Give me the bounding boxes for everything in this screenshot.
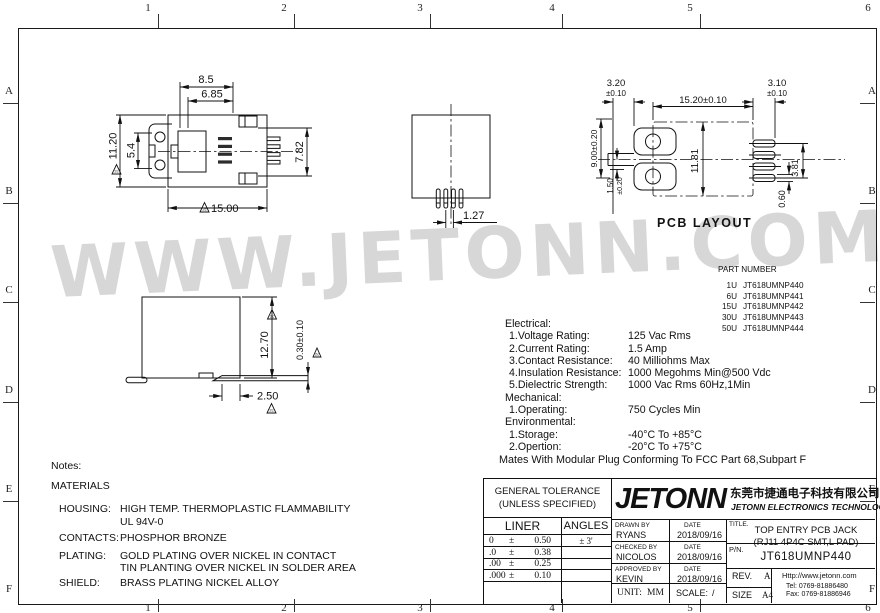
divider	[726, 587, 771, 588]
part-qty: 15U	[698, 302, 737, 313]
dim-label: 1.50	[606, 178, 615, 194]
part-qty: 1U	[698, 281, 737, 292]
material-value: GOLD PLATING OVER NICKEL IN CONTACT	[120, 550, 336, 562]
pcb-layout-caption: PCB LAYOUT	[657, 216, 752, 230]
grid-row-label: C	[864, 284, 880, 296]
grid-tick	[860, 302, 875, 303]
top-view-drawing: 8.5 6.85 11.20 2c 5.4 7.82 2c 15.00	[95, 60, 335, 230]
dim-label: 6.85	[201, 89, 222, 101]
dim-label: 1.27	[463, 210, 484, 222]
materials-title: MATERIALS	[51, 480, 110, 492]
tel: Tel: 0769-81886480	[786, 583, 848, 590]
grid-tick	[3, 302, 18, 303]
spec-row: 2.Current Rating:1.5 Amp	[505, 343, 771, 355]
drawing-title-line2: (RJ11 4P4C SMT,L PAD)	[736, 537, 876, 548]
checked-date: 2018/09/16	[677, 552, 722, 562]
material-value: HIGH TEMP. THERMOPLASTIC FLAMMABILITY	[120, 503, 350, 515]
part-pn: JT618UMNP441	[743, 292, 804, 301]
pcb-geometry	[598, 122, 845, 196]
spec-row: 2.Opertion:-20°C To +75°C	[505, 441, 771, 453]
spec-row: 3.Contact Resistance:40 Milliohms Max	[505, 355, 771, 367]
spec-label: 1.Operating:	[509, 404, 628, 416]
dim-label: ±0.20	[617, 177, 624, 195]
grid-tick	[3, 501, 18, 502]
grid-col-label: 5	[682, 2, 698, 14]
date-label: DATE	[684, 566, 701, 573]
grid-tick	[860, 402, 875, 403]
grid-tick	[294, 14, 295, 28]
checked-by-label: CHECKED BY	[615, 544, 657, 551]
grid-col-label: 3	[412, 602, 428, 613]
material-value: TIN PLANTING OVER NICKEL IN SOLDER AREA	[120, 562, 356, 574]
dim-label: 0.60	[777, 190, 787, 208]
environmental-title: Environmental:	[505, 416, 771, 428]
tol-value: 0.25	[525, 559, 551, 569]
front-view-geometry	[412, 104, 490, 227]
spec-value: 1.5 Amp	[628, 343, 667, 355]
spec-value: -20°C To +75°C	[628, 441, 702, 453]
approved-by-label: APPROVED BY	[615, 566, 662, 573]
divider	[726, 568, 875, 569]
tol-value: 0.10	[525, 571, 551, 581]
size-label: SIZE	[732, 590, 752, 600]
dim-label: 11.20	[108, 133, 120, 160]
tol-value: 0.38	[525, 548, 551, 558]
date-label: DATE	[684, 522, 701, 529]
mechanical-title: Mechanical:	[505, 392, 771, 404]
date-label: DATE	[684, 544, 701, 551]
tol-row: .0±0.38	[489, 548, 551, 558]
part-row: 6UJT618UMNP441	[698, 292, 804, 303]
liner-header: LINER	[484, 519, 561, 533]
grid-tick	[158, 14, 159, 28]
part-row: 1UJT618UMNP440	[698, 281, 804, 292]
divider	[611, 541, 726, 542]
spec-row: 4.Insulation Resistance:1000 Megohms Min…	[505, 367, 771, 379]
website: Http://www.jetonn.com	[782, 571, 857, 580]
divider	[611, 519, 875, 520]
grid-tick	[3, 103, 18, 104]
revision-triangle-label: 2c	[269, 408, 273, 413]
drawing-title-line1: TOP ENTRY PCB JACK	[736, 525, 876, 536]
material-value: BRASS PLATING NICKEL ALLOY	[120, 577, 279, 589]
material-label: CONTACTS:	[59, 532, 119, 544]
grid-row-label: F	[1, 583, 17, 595]
spec-label: 1.Storage:	[509, 429, 628, 441]
spec-label: 2.Opertion:	[509, 441, 628, 453]
tol-prefix: .00	[489, 559, 509, 569]
grid-col-label: 2	[276, 2, 292, 14]
top-view-dimensions: 8.5 6.85 11.20 2c 5.4 7.82 2c 15.00	[108, 74, 313, 215]
part-row: 15UJT618UMNP442	[698, 302, 804, 313]
tol-value: 0.50	[525, 536, 551, 546]
checked-by-name: NICOLOS	[616, 552, 657, 562]
tol-pm: ±	[509, 571, 525, 581]
grid-tick	[562, 14, 563, 28]
grid-row-label: E	[1, 483, 17, 495]
tol-prefix: 0	[489, 536, 509, 546]
dim-label: 3.20	[607, 78, 626, 89]
spec-block: Electrical: 1.Voltage Rating:125 Vac Rms…	[505, 318, 771, 453]
grid-tick	[158, 599, 159, 612]
unit-label: UNIT:	[617, 588, 642, 598]
spec-label: 2.Current Rating:	[509, 343, 628, 355]
tol-prefix: .000	[489, 571, 509, 581]
dim-label: 5.4	[126, 143, 138, 158]
tol-pm: ±	[509, 536, 525, 546]
drawn-date: 2018/09/16	[677, 530, 722, 540]
grid-col-label: 6	[860, 2, 876, 14]
spec-label: 5.Dielectric Strength:	[509, 379, 628, 391]
spec-label: 3.Contact Resistance:	[509, 355, 628, 367]
spec-value: 125 Vac Rms	[628, 330, 691, 342]
revision-triangle-label: 2c	[114, 169, 118, 174]
grid-col-label: 1	[140, 602, 156, 613]
front-view-dimensions: 1.27	[433, 210, 497, 228]
drawing-sheet: WWW.JETONN.COM 1 2 3 4 5 6 1 2 3 4 5 6 A…	[0, 0, 880, 613]
rev-value: A	[764, 571, 771, 581]
side-view-dimensions: 2c 12.70 0.30±0.10 2c 2.50 2c	[209, 297, 321, 413]
divider	[726, 519, 727, 603]
tol-row: 0±0.50	[489, 536, 551, 546]
material-value: PHOSPHOR BRONZE	[120, 532, 227, 544]
tol-row: .00±0.25	[489, 559, 551, 569]
angles-header: ANGLES	[561, 520, 611, 532]
electrical-title: Electrical:	[505, 318, 771, 330]
grid-tick	[700, 14, 701, 28]
part-pn: JT618UMNP442	[743, 302, 804, 311]
grid-row-label: A	[1, 85, 17, 97]
spec-row: 1.Storage:-40°C To +85°C	[505, 429, 771, 441]
grid-tick	[3, 402, 18, 403]
spec-value: 40 Milliohms Max	[628, 355, 710, 367]
grid-col-label: 1	[140, 2, 156, 14]
title-block: GENERAL TOLERANCE (UNLESS SPECIFIED) LIN…	[483, 478, 877, 605]
spec-label: 1.Voltage Rating:	[509, 330, 628, 342]
approved-by-name: KEVIN	[616, 574, 643, 584]
pn-value: JT618UMNP440	[736, 551, 876, 563]
front-view-drawing: 1.27	[390, 98, 525, 230]
divider	[484, 517, 611, 518]
tolerance-header: GENERAL TOLERANCE	[484, 486, 611, 497]
dim-label: 0.30±0.10	[295, 320, 305, 360]
spec-row: 1.Operating:750 Cycles Min	[505, 404, 771, 416]
company-name-en: JETONN ELECTRONICS TECHNOLOGY	[731, 502, 880, 512]
part-number-title: PART NUMBER	[718, 265, 777, 274]
drawn-by-label: DRAWN BY	[615, 522, 650, 529]
grid-row-label: C	[1, 284, 17, 296]
grid-col-label: 3	[412, 2, 428, 14]
side-view-drawing: 2c 12.70 0.30±0.10 2c 2.50 2c	[105, 285, 335, 420]
spec-row: 5.Dielectric Strength:1000 Vac Rms 60Hz,…	[505, 379, 771, 391]
company-name-cn: 东莞市捷通电子科技有限公司	[730, 485, 880, 501]
tol-row: .000±0.10	[489, 571, 551, 581]
spec-label: 4.Insulation Resistance:	[509, 367, 628, 379]
tolerance-header2: (UNLESS SPECIFIED)	[484, 499, 611, 510]
dim-label: ±0.10	[767, 89, 788, 98]
material-value: UL 94V-0	[120, 516, 163, 528]
dim-label: 8.5	[198, 74, 213, 86]
angle-tolerance: ± 3'	[561, 536, 611, 546]
fax: Fax: 0769-81886946	[786, 591, 851, 598]
dim-label: ±0.10	[606, 89, 627, 98]
notes-title: Notes:	[51, 460, 81, 472]
scale-label: SCALE:	[676, 588, 708, 598]
dim-label: 2.50	[257, 391, 278, 403]
divider	[669, 519, 670, 603]
spec-row: 1.Voltage Rating:125 Vac Rms	[505, 330, 771, 342]
drawn-by-name: RYANS	[616, 530, 646, 540]
rev-label: REV.	[732, 571, 752, 581]
dim-label: 11.81	[690, 148, 701, 173]
side-view-geometry	[126, 297, 308, 383]
tol-pm: ±	[509, 559, 525, 569]
tol-prefix: .0	[489, 548, 509, 558]
grid-col-label: 2	[276, 602, 292, 613]
spec-value: -40°C To +85°C	[628, 429, 702, 441]
revision-triangle-label: 2c	[270, 314, 274, 319]
spec-value: 1000 Vac Rms 60Hz,1Min	[628, 379, 750, 391]
fcc-footnote: Mates With Modular Plug Conforming To FC…	[499, 454, 806, 466]
scale-value: /	[712, 588, 715, 598]
grid-row-label: B	[1, 185, 17, 197]
unit-value: MM	[647, 588, 664, 598]
dim-label: 9.00±0.20	[589, 129, 599, 167]
spec-value: 750 Cycles Min	[628, 404, 700, 416]
grid-row-label: D	[864, 384, 880, 396]
part-pn: JT618UMNP440	[743, 281, 804, 290]
revision-triangle-label: 2c	[315, 352, 319, 357]
part-qty: 6U	[698, 292, 737, 303]
divider	[611, 563, 726, 564]
dim-label: 7.82	[294, 141, 306, 162]
grid-row-label: D	[1, 384, 17, 396]
dim-label: 15.00	[211, 203, 239, 215]
grid-tick	[430, 14, 431, 28]
jetonn-logo: JETONN	[615, 483, 726, 516]
spec-value: 1000 Megohms Min@500 Vdc	[628, 367, 771, 379]
divider	[484, 581, 611, 582]
grid-tick	[3, 203, 18, 204]
dim-label: 12.70	[259, 331, 271, 359]
dim-label: 3.10	[768, 78, 787, 89]
material-label: HOUSING:	[59, 503, 111, 515]
tol-pm: ±	[509, 548, 525, 558]
grid-tick	[294, 599, 295, 612]
dim-label: 15.20±0.10	[679, 95, 726, 106]
material-label: PLATING:	[59, 550, 106, 562]
grid-col-label: 4	[544, 2, 560, 14]
grid-tick	[430, 599, 431, 612]
size-value: A4	[762, 590, 773, 600]
pcb-layout-drawing: 15.20±0.10 3.20 ±0.10 3.10 ±0.10 9.00±0.…	[585, 70, 880, 235]
revision-triangle-label: 2c	[202, 207, 206, 212]
approved-date: 2018/09/16	[677, 574, 722, 584]
material-label: SHIELD:	[59, 577, 100, 589]
